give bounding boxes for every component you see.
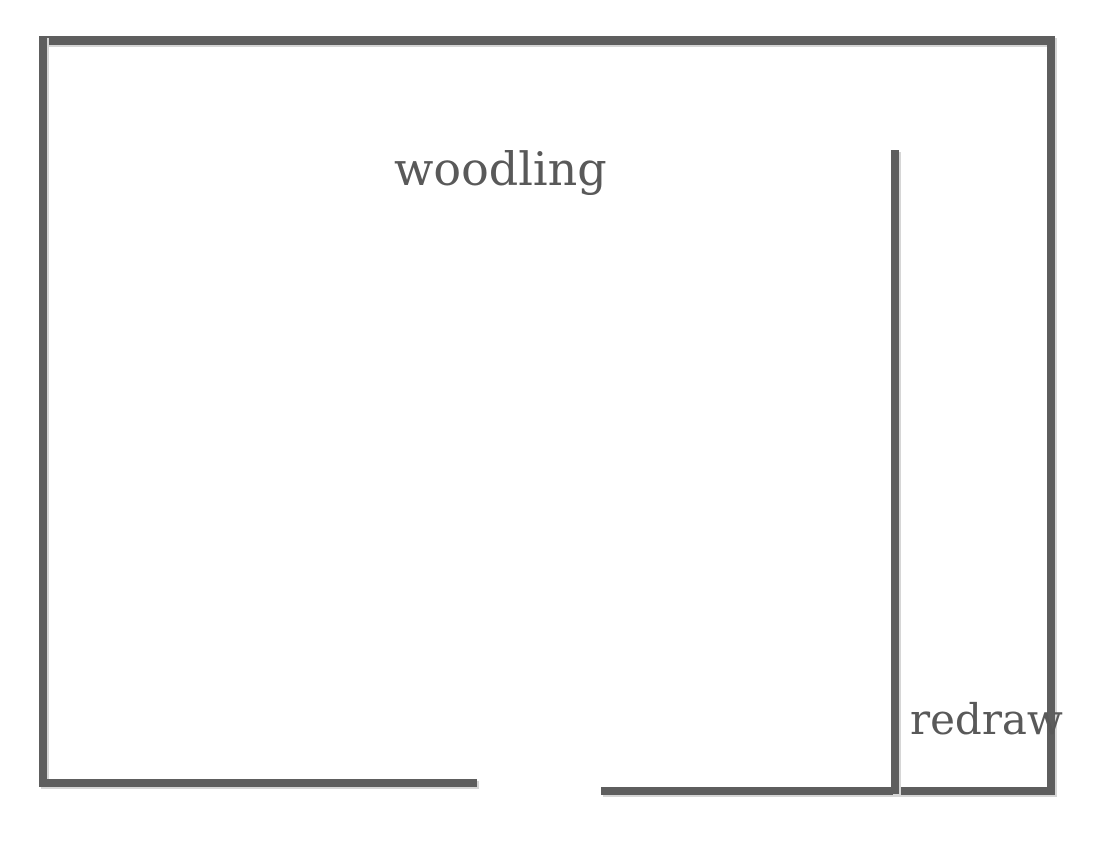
wall-right — [1047, 36, 1055, 794]
drawing-canvas: woodling redraw — [0, 0, 1100, 842]
redraw-label[interactable]: redraw — [910, 699, 1063, 741]
interior-wall — [891, 150, 899, 794]
wall-bottom-left-segment — [39, 779, 477, 787]
woodling-label: woodling — [394, 146, 607, 192]
wall-top — [39, 36, 1055, 45]
wall-left — [39, 36, 47, 787]
wall-bottom-right-segment — [601, 787, 1055, 795]
